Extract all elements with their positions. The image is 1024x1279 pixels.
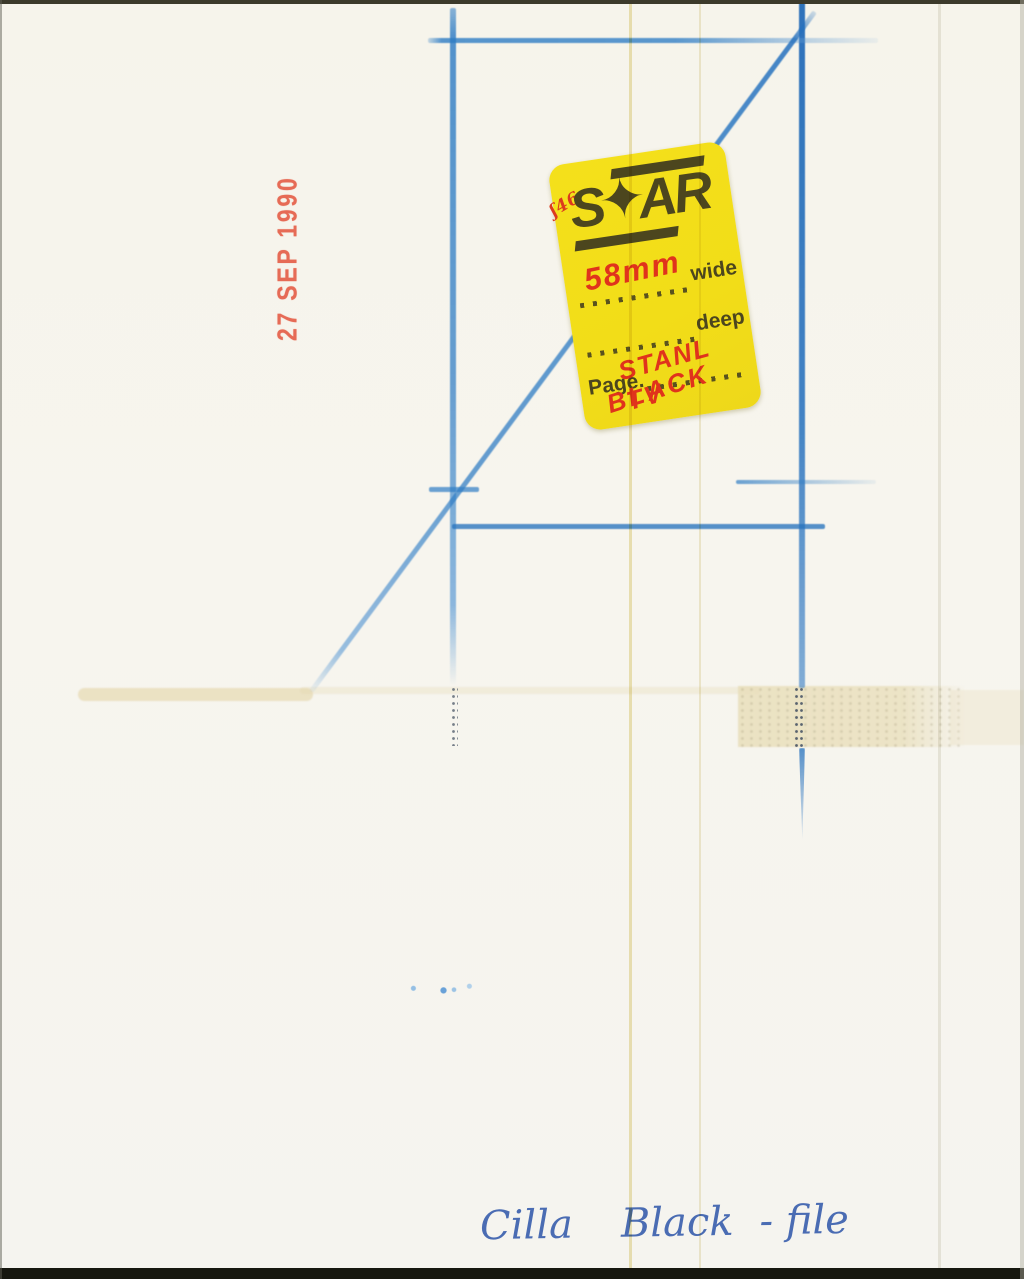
caption-word-1: Cilla bbox=[480, 1202, 574, 1250]
paper-crease-3 bbox=[938, 4, 941, 1268]
scan-edge-right bbox=[1020, 0, 1024, 1279]
caption-word-2: Black bbox=[620, 1199, 733, 1247]
caption-word-3: - file bbox=[759, 1197, 849, 1245]
stain-band-left bbox=[78, 688, 313, 701]
star-usage-sticker: ʃ46 S ✦ AR 58mm wide deep Page. STANL TV… bbox=[547, 140, 763, 431]
blue-ink-smudge bbox=[405, 982, 475, 996]
crop-mark-horizontal-mid bbox=[452, 524, 825, 529]
paper-crease-2 bbox=[699, 4, 701, 1268]
stain-band-right bbox=[738, 686, 966, 747]
paper-crease-1 bbox=[629, 4, 632, 1268]
crop-mark-vertical-right bbox=[799, 2, 805, 688]
ink-speckles-right bbox=[794, 686, 803, 748]
crop-mark-horizontal-mid-faint bbox=[736, 480, 876, 484]
scan-edge-bottom bbox=[0, 1268, 1024, 1279]
crop-mark-tick-left bbox=[429, 487, 479, 492]
photo-reverse-scan: 27 SEP 1990 ʃ46 S ✦ AR 58mm wide deep Pa… bbox=[0, 0, 1024, 1279]
scan-edge-top bbox=[0, 0, 1024, 4]
crop-mark-vertical-right-tail bbox=[799, 748, 805, 840]
crop-mark-horizontal-top bbox=[428, 38, 878, 43]
scan-edge-left bbox=[0, 0, 2, 1279]
date-stamp: 27 SEP 1990 bbox=[272, 176, 304, 341]
handwritten-caption: CillaBlack- file bbox=[480, 1197, 850, 1249]
wide-label: wide bbox=[689, 256, 739, 287]
stain-band-right-edge bbox=[950, 690, 1024, 745]
crop-mark-vertical-left bbox=[450, 8, 456, 686]
logo-wordmark: S ✦ AR bbox=[565, 159, 714, 241]
ink-speckles-left bbox=[451, 686, 458, 746]
logo-letters-ar: AR bbox=[634, 159, 714, 231]
stain-band-middle bbox=[300, 687, 760, 694]
stain-texture bbox=[738, 686, 966, 747]
